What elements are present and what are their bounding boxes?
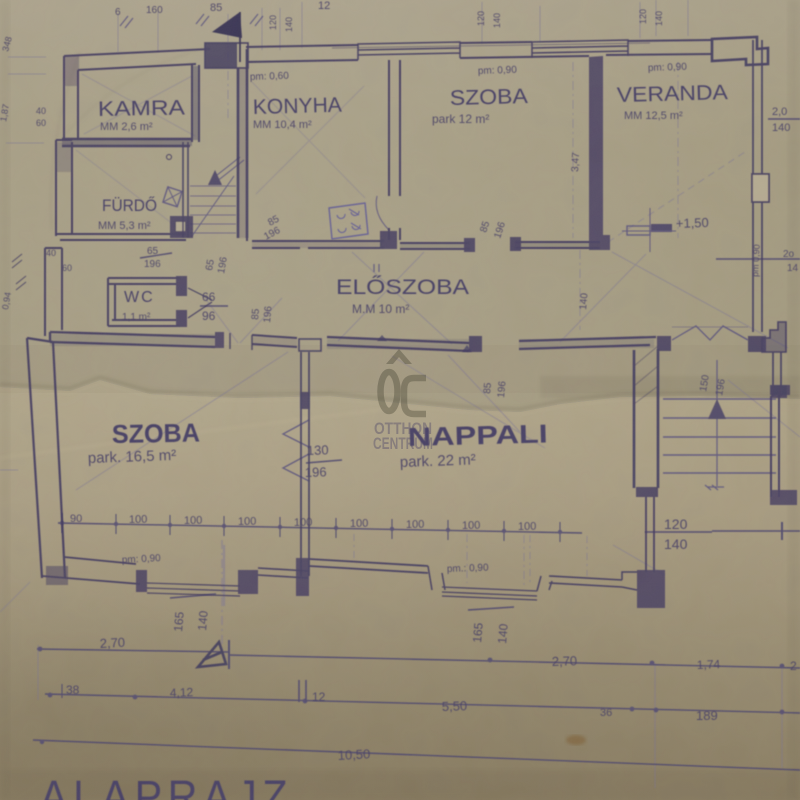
svg-text:KAMRA: KAMRA <box>98 96 185 121</box>
svg-text:5,50: 5,50 <box>442 698 468 714</box>
svg-text:12: 12 <box>318 0 330 12</box>
svg-text:park. 16,5 m²: park. 16,5 m² <box>88 447 177 467</box>
svg-text:2,70: 2,70 <box>552 653 578 669</box>
svg-text:2,70: 2,70 <box>99 635 125 651</box>
svg-text:+1,50: +1,50 <box>676 215 709 231</box>
svg-text:pm: 0,90: pm: 0,90 <box>122 553 162 566</box>
svg-text:12: 12 <box>312 690 326 704</box>
svg-text:pm: 0,90: pm: 0,90 <box>478 65 518 77</box>
svg-text:100: 100 <box>518 521 537 533</box>
svg-text:60: 60 <box>36 118 46 128</box>
svg-text:3,47: 3,47 <box>570 152 582 172</box>
svg-text:100: 100 <box>406 519 425 531</box>
svg-text:14: 14 <box>787 263 799 274</box>
svg-text:CENTRUM: CENTRUM <box>373 434 433 453</box>
svg-text:36: 36 <box>600 707 612 719</box>
svg-text:100: 100 <box>350 518 369 530</box>
svg-text:100: 100 <box>462 520 481 532</box>
svg-text:SZOBA: SZOBA <box>112 417 201 449</box>
svg-text:pm 0,90: pm 0,90 <box>750 244 762 277</box>
svg-text:165: 165 <box>470 622 486 643</box>
svg-text:40: 40 <box>46 248 56 258</box>
svg-text:160: 160 <box>146 5 163 16</box>
svg-text:140: 140 <box>772 122 790 134</box>
svg-text:MM 10,4 m²: MM 10,4 m² <box>253 119 312 131</box>
svg-text:85: 85 <box>250 308 262 320</box>
svg-text:96: 96 <box>202 309 216 323</box>
svg-text:100: 100 <box>129 514 148 526</box>
svg-text:100: 100 <box>184 515 203 527</box>
svg-text:M.M 10 m²: M.M 10 m² <box>352 302 409 316</box>
svg-text:140: 140 <box>492 13 502 28</box>
svg-text:MM 5,3 m²: MM 5,3 m² <box>98 220 151 232</box>
svg-text:85: 85 <box>210 2 222 14</box>
svg-text:85: 85 <box>482 382 494 394</box>
svg-text:189: 189 <box>696 708 718 723</box>
svg-text:140: 140 <box>654 11 664 26</box>
svg-text:2o: 2o <box>783 249 795 260</box>
svg-text:120: 120 <box>476 11 486 26</box>
svg-text:140: 140 <box>495 623 511 644</box>
svg-text:196: 196 <box>496 380 508 398</box>
svg-text:SZOBA: SZOBA <box>450 85 529 110</box>
svg-text:4,12: 4,12 <box>170 685 194 700</box>
svg-text:100: 100 <box>294 517 313 529</box>
svg-text:MM 2,6 m²: MM 2,6 m² <box>100 121 153 133</box>
svg-text:ELŐSZOBA: ELŐSZOBA <box>336 276 469 299</box>
svg-text:140: 140 <box>664 536 688 552</box>
svg-text:120: 120 <box>664 516 688 532</box>
svg-text:MM 12,5 m²: MM 12,5 m² <box>624 110 683 122</box>
svg-text:pm.: 0,90: pm.: 0,90 <box>447 563 489 575</box>
svg-text:park 12 m²: park 12 m² <box>432 112 489 126</box>
svg-text:1,1 m²: 1,1 m² <box>122 312 151 323</box>
svg-text:140: 140 <box>195 610 211 631</box>
svg-text:196: 196 <box>144 259 161 270</box>
svg-text:ALAPRAJZ: ALAPRAJZ <box>40 771 293 800</box>
svg-text:VERANDA: VERANDA <box>617 81 729 107</box>
svg-text:pm: 0,60: pm: 0,60 <box>250 71 290 83</box>
svg-text:140: 140 <box>284 17 294 32</box>
svg-text:196: 196 <box>262 305 274 323</box>
svg-text:65: 65 <box>147 246 159 257</box>
svg-text:196: 196 <box>305 464 327 480</box>
svg-text:90: 90 <box>70 513 82 525</box>
svg-text:2: 2 <box>790 659 797 673</box>
svg-text:park. 22 m²: park. 22 m² <box>400 451 476 471</box>
svg-text:FÜRDŐ: FÜRDŐ <box>102 196 157 215</box>
svg-text:38: 38 <box>66 683 80 697</box>
svg-text:40: 40 <box>36 106 46 116</box>
svg-text:6: 6 <box>115 7 121 18</box>
svg-text:1,74: 1,74 <box>697 657 721 672</box>
svg-text:2,0: 2,0 <box>772 106 787 118</box>
svg-text:10,50: 10,50 <box>337 746 370 763</box>
svg-text:100: 100 <box>238 516 257 528</box>
svg-text:130: 130 <box>307 442 329 458</box>
svg-text:120: 120 <box>268 15 278 30</box>
svg-text:pm: 0,90: pm: 0,90 <box>648 62 688 74</box>
svg-text:140: 140 <box>578 292 590 310</box>
svg-text:165: 165 <box>171 611 187 632</box>
svg-text:60: 60 <box>62 263 72 273</box>
svg-text:66: 66 <box>202 290 216 304</box>
svg-text:KONYHA: KONYHA <box>253 94 343 119</box>
svg-text:WC: WC <box>124 289 155 306</box>
svg-text:120: 120 <box>638 9 648 24</box>
